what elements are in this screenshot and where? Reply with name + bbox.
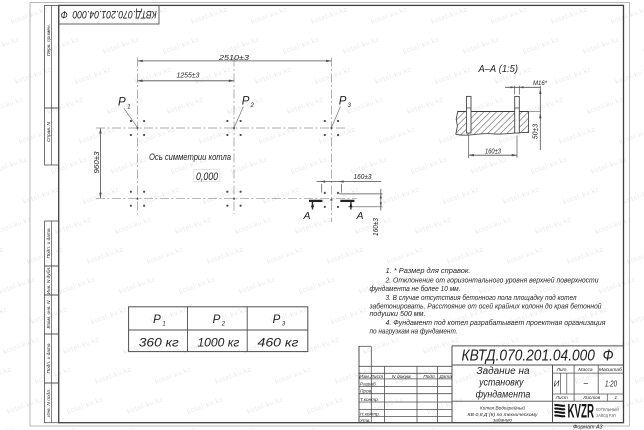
svg-text:Подп. и дата: Подп. и дата	[46, 343, 52, 373]
svg-text:kotel-kv.kz: kotel-kv.kz	[202, 186, 240, 206]
svg-text:kotel-kv.kz: kotel-kv.kz	[346, 96, 384, 116]
svg-text:Утв.: Утв.	[360, 418, 371, 423]
svg-text:kotel-kv.kz: kotel-kv.kz	[98, 426, 136, 430]
svg-text:фундамента: фундамента	[476, 389, 531, 401]
svg-text:kotel-kv.kz: kotel-kv.kz	[330, 306, 368, 326]
svg-text:kotel-kv.kz: kotel-kv.kz	[466, 96, 504, 116]
svg-text:kotel-kv.kz: kotel-kv.kz	[402, 36, 440, 56]
svg-text:kotel-kv.kz: kotel-kv.kz	[166, 96, 204, 116]
svg-text:2: 2	[221, 322, 226, 328]
svg-text:kotel-kv.kz: kotel-kv.kz	[110, 156, 148, 176]
svg-text:КВ-0,8 Д (К) по техническому: КВ-0,8 Д (К) по техническому	[468, 412, 539, 418]
svg-text:ЗАВОД РЭП: ЗАВОД РЭП	[596, 413, 616, 418]
svg-text:kotel-kv.kz: kotel-kv.kz	[318, 126, 356, 146]
svg-text:kotel-kv.kz: kotel-kv.kz	[382, 186, 420, 206]
svg-text:kotel-kv.kz: kotel-kv.kz	[618, 126, 644, 146]
svg-text:kotel-kv.kz: kotel-kv.kz	[234, 216, 272, 236]
svg-text:2510±3: 2510±3	[218, 53, 250, 62]
svg-text:kotel-kv.kz: kotel-kv.kz	[0, 96, 25, 116]
svg-text:160±3: 160±3	[485, 148, 501, 155]
svg-text:kotel-kv.kz: kotel-kv.kz	[206, 246, 244, 266]
svg-text:kotel-kv.kz: kotel-kv.kz	[282, 36, 320, 56]
svg-text:kotel-kv.kz: kotel-kv.kz	[398, 426, 436, 430]
svg-text:kotel-kv.kz: kotel-kv.kz	[518, 426, 556, 430]
svg-text:Ось симметрии котла: Ось симметрии котла	[149, 152, 231, 163]
svg-text:Масштаб: Масштаб	[599, 367, 622, 373]
svg-text:kotel-kv.kz: kotel-kv.kz	[74, 66, 112, 86]
svg-text:Взам. инв. N: Взам. инв. N	[46, 300, 52, 328]
svg-text:960±3: 960±3	[92, 151, 101, 174]
svg-text:А: А	[355, 210, 363, 222]
svg-text:kotel-kv.kz: kotel-kv.kz	[326, 246, 364, 266]
svg-text:kotel-kv.kz: kotel-kv.kz	[554, 66, 592, 86]
svg-text:kotel-kv.kz: kotel-kv.kz	[50, 156, 88, 176]
svg-text:kotel-kv.kz: kotel-kv.kz	[534, 216, 572, 236]
svg-text:kotel-kv.kz: kotel-kv.kz	[0, 306, 9, 326]
svg-text:kotel-kv.kz: kotel-kv.kz	[594, 216, 632, 236]
svg-text:kotel-kv.kz: kotel-kv.kz	[230, 156, 268, 176]
svg-text:kotel-kv.kz: kotel-kv.kz	[146, 246, 184, 266]
svg-text:kotel-kv.kz: kotel-kv.kz	[190, 6, 228, 26]
svg-text:kotel-kv.kz: kotel-kv.kz	[102, 36, 140, 56]
svg-text:kotel-kv.kz: kotel-kv.kz	[178, 276, 216, 296]
svg-text:kotel-kv.kz: kotel-kv.kz	[78, 126, 116, 146]
svg-text:1: 1	[614, 395, 617, 400]
svg-text:kotel-kv.kz: kotel-kv.kz	[502, 186, 540, 206]
svg-text:kotel-kv.kz: kotel-kv.kz	[162, 36, 200, 56]
svg-text:Т.контр.: Т.контр.	[360, 397, 379, 402]
svg-text:kotel-kv.kz: kotel-kv.kz	[294, 216, 332, 236]
svg-text:kotel-kv.kz: kotel-kv.kz	[54, 216, 92, 236]
svg-text:–: –	[583, 378, 589, 387]
svg-text:Изм.Лист: Изм.Лист	[359, 374, 383, 379]
svg-text:Масса: Масса	[578, 367, 593, 373]
svg-text:Задание на: Задание на	[477, 366, 530, 377]
svg-text:Дата: Дата	[438, 374, 452, 379]
svg-text:Котел Водогрейный: Котел Водогрейный	[480, 404, 525, 411]
svg-text:50±3: 50±3	[533, 124, 540, 139]
svg-text:P: P	[339, 96, 347, 108]
svg-text:kotel-kv.kz: kotel-kv.kz	[430, 6, 468, 26]
svg-text:kotel-kv.kz: kotel-kv.kz	[126, 396, 164, 416]
svg-text:Формат А3: Формат А3	[573, 424, 603, 430]
svg-text:КВТД.070.201.04.000 Ф: КВТД.070.201.04.000 Ф	[462, 347, 614, 364]
svg-text:Справ. N: Справ. N	[46, 121, 52, 142]
svg-text:1: 1	[127, 105, 130, 111]
svg-text:kotel-kv.kz: kotel-kv.kz	[82, 186, 120, 206]
svg-text:kotel-kv.kz: kotel-kv.kz	[246, 396, 284, 416]
svg-text:kotel-kv.kz: kotel-kv.kz	[634, 366, 644, 386]
svg-text:kotel-kv.kz: kotel-kv.kz	[378, 126, 416, 146]
svg-text:kotel-kv.kz: kotel-kv.kz	[338, 426, 376, 430]
svg-text:Разраб.: Разраб.	[360, 381, 377, 386]
svg-text:N докум.: N докум.	[392, 374, 412, 379]
svg-text:kotel-kv.kz: kotel-kv.kz	[114, 216, 152, 236]
svg-text:kotel-kv.kz: kotel-kv.kz	[10, 6, 48, 26]
svg-text:kotel-kv.kz: kotel-kv.kz	[614, 66, 644, 86]
svg-text:P: P	[273, 314, 281, 326]
svg-text:kotel-kv.kz: kotel-kv.kz	[218, 426, 256, 430]
svg-text:P: P	[153, 314, 161, 326]
svg-text:kotel-kv.kz: kotel-kv.kz	[186, 396, 224, 416]
svg-text:kotel-kv.kz: kotel-kv.kz	[62, 336, 100, 356]
svg-text:kotel-kv.kz: kotel-kv.kz	[610, 6, 644, 26]
svg-text:460 кг: 460 кг	[258, 337, 299, 349]
svg-text:kotel-kv.kz: kotel-kv.kz	[630, 306, 644, 326]
svg-text:kotel-kv.kz: kotel-kv.kz	[306, 396, 344, 416]
svg-text:kotel-kv.kz: kotel-kv.kz	[386, 246, 424, 266]
svg-text:kotel-kv.kz: kotel-kv.kz	[46, 96, 84, 116]
svg-text:kotel-kv.kz: kotel-kv.kz	[342, 36, 380, 56]
svg-text:kotel-kv.kz: kotel-kv.kz	[0, 276, 37, 296]
svg-text:kotel-kv.kz: kotel-kv.kz	[290, 156, 328, 176]
svg-text:kotel-kv.kz: kotel-kv.kz	[426, 396, 464, 416]
svg-text:kotel-kv.kz: kotel-kv.kz	[0, 156, 29, 176]
svg-text:Перв. примен.: Перв. примен.	[46, 24, 52, 56]
svg-text:1: 1	[162, 322, 165, 328]
svg-text:kotel-kv.kz: kotel-kv.kz	[442, 186, 480, 206]
svg-text:kotel-kv.kz: kotel-kv.kz	[58, 276, 96, 296]
svg-text:kotel-kv.kz: kotel-kv.kz	[0, 216, 33, 236]
svg-text:kotel-kv.kz: kotel-kv.kz	[474, 216, 512, 236]
svg-text:kotel-kv.kz: kotel-kv.kz	[462, 36, 500, 56]
svg-text:Инв. N дубл.: Инв. N дубл.	[46, 267, 52, 295]
svg-text:Подп. и дата: Подп. и дата	[46, 228, 52, 258]
svg-text:KVZR: KVZR	[568, 401, 595, 423]
svg-text:И: И	[554, 380, 560, 389]
svg-text:заданию: заданию	[492, 418, 512, 424]
svg-text:Листов: Листов	[582, 395, 601, 400]
svg-text:kotel-kv.kz: kotel-kv.kz	[198, 126, 236, 146]
svg-text:А: А	[302, 210, 310, 222]
svg-text:kotel-kv.kz: kotel-kv.kz	[2, 336, 40, 356]
svg-text:3: 3	[282, 322, 286, 328]
svg-text:kotel-kv.kz: kotel-kv.kz	[374, 66, 412, 86]
svg-text:P: P	[242, 96, 250, 108]
svg-text:Н.контр.: Н.контр.	[360, 412, 380, 417]
svg-text:kotel-kv.kz: kotel-kv.kz	[598, 276, 636, 296]
svg-text:kotel-kv.kz: kotel-kv.kz	[66, 396, 104, 416]
svg-text:kotel-kv.kz: kotel-kv.kz	[274, 366, 312, 386]
svg-text:P: P	[118, 97, 126, 109]
svg-text:kotel-kv.kz: kotel-kv.kz	[526, 96, 564, 116]
svg-text:kotel-kv.kz: kotel-kv.kz	[266, 246, 304, 266]
svg-text:kotel-kv.kz: kotel-kv.kz	[254, 66, 292, 86]
svg-text:kotel-kv.kz: kotel-kv.kz	[434, 66, 472, 86]
svg-text:kotel-kv.kz: kotel-kv.kz	[238, 276, 276, 296]
svg-text:Подп.: Подп.	[423, 374, 435, 379]
svg-text:160±3: 160±3	[354, 174, 372, 181]
svg-text:kotel-kv.kz: kotel-kv.kz	[158, 426, 196, 430]
svg-text:kotel-kv.kz: kotel-kv.kz	[410, 156, 448, 176]
svg-text:по нагрузкам на фундамент.: по нагрузкам на фундамент.	[370, 327, 458, 336]
svg-text:kotel-kv.kz: kotel-kv.kz	[414, 216, 452, 236]
svg-text:360 кг: 360 кг	[139, 337, 179, 349]
svg-text:КВТД.070.201.04.000 Ф: КВТД.070.201.04.000 Ф	[60, 8, 156, 20]
svg-text:kotel-kv.kz: kotel-kv.kz	[506, 246, 544, 266]
svg-text:kotel-kv.kz: kotel-kv.kz	[0, 246, 5, 266]
svg-text:160±3: 160±3	[373, 218, 380, 236]
svg-text:установку: установку	[478, 377, 524, 388]
svg-text:kotel-kv.kz: kotel-kv.kz	[470, 156, 508, 176]
svg-text:kotel-kv.kz: kotel-kv.kz	[0, 426, 17, 430]
svg-text:kotel-kv.kz: kotel-kv.kz	[38, 426, 76, 430]
svg-text:kotel-kv.kz: kotel-kv.kz	[446, 246, 484, 266]
svg-text:подушки 500 мм.: подушки 500 мм.	[370, 309, 426, 318]
svg-text:Пров.: Пров.	[360, 389, 372, 394]
svg-text:kotel-kv.kz: kotel-kv.kz	[314, 66, 352, 86]
svg-text:kotel-kv.kz: kotel-kv.kz	[134, 66, 172, 86]
svg-text:kotel-kv.kz: kotel-kv.kz	[86, 246, 124, 266]
svg-text:kotel-kv.kz: kotel-kv.kz	[582, 36, 620, 56]
svg-text:1255±3: 1255±3	[177, 71, 201, 80]
svg-text:1000 кг: 1000 кг	[197, 337, 239, 349]
svg-text:kotel-kv.kz: kotel-kv.kz	[310, 6, 348, 26]
svg-text:kotel-kv.kz: kotel-kv.kz	[530, 156, 568, 176]
svg-text:kotel-kv.kz: kotel-kv.kz	[154, 366, 192, 386]
svg-text:kotel-kv.kz: kotel-kv.kz	[214, 366, 252, 386]
svg-text:kotel-kv.kz: kotel-kv.kz	[370, 6, 408, 26]
svg-text:P: P	[213, 314, 221, 326]
svg-text:kotel-kv.kz: kotel-kv.kz	[566, 246, 604, 266]
svg-text:Лит.: Лит.	[556, 367, 568, 373]
svg-text:Лист: Лист	[555, 395, 568, 400]
svg-text:1. * Размер для справок.: 1. * Размер для справок.	[386, 266, 471, 275]
svg-text:kotel-kv.kz: kotel-kv.kz	[626, 246, 644, 266]
svg-text:kotel-kv.kz: kotel-kv.kz	[458, 426, 496, 430]
svg-text:kotel-kv.kz: kotel-kv.kz	[22, 186, 60, 206]
svg-text:kotel-kv.kz: kotel-kv.kz	[622, 186, 644, 206]
svg-text:kotel-kv.kz: kotel-kv.kz	[638, 426, 644, 430]
svg-text:kotel-kv.kz: kotel-kv.kz	[250, 6, 288, 26]
svg-text:А–А (1:5): А–А (1:5)	[478, 63, 518, 75]
svg-text:2: 2	[250, 103, 255, 109]
svg-text:1:20: 1:20	[605, 380, 618, 389]
svg-text:kotel-kv.kz: kotel-kv.kz	[558, 126, 596, 146]
svg-text:kotel-kv.kz: kotel-kv.kz	[258, 126, 296, 146]
svg-text:kotel-kv.kz: kotel-kv.kz	[522, 36, 560, 56]
svg-text:kotel-kv.kz: kotel-kv.kz	[550, 6, 588, 26]
svg-text:kotel-kv.kz: kotel-kv.kz	[142, 186, 180, 206]
svg-text:фундамента не более 10 мм.: фундамента не более 10 мм.	[370, 284, 461, 293]
svg-text:kotel-kv.kz: kotel-kv.kz	[278, 426, 316, 430]
svg-text:kotel-kv.kz: kotel-kv.kz	[118, 276, 156, 296]
svg-text:kotel-kv.kz: kotel-kv.kz	[0, 366, 13, 386]
svg-text:kotel-kv.kz: kotel-kv.kz	[14, 66, 52, 86]
svg-text:kotel-kv.kz: kotel-kv.kz	[90, 306, 128, 326]
svg-text:kotel-kv.kz: kotel-kv.kz	[6, 396, 44, 416]
svg-text:kotel-kv.kz: kotel-kv.kz	[586, 96, 624, 116]
svg-text:kotel-kv.kz: kotel-kv.kz	[286, 96, 324, 116]
svg-text:kotel-kv.kz: kotel-kv.kz	[0, 186, 1, 206]
svg-text:kotel-kv.kz: kotel-kv.kz	[562, 186, 600, 206]
svg-text:kotel-kv.kz: kotel-kv.kz	[298, 276, 336, 296]
svg-text:Инв. N подл.: Инв. N подл.	[46, 389, 52, 417]
svg-text:0,000: 0,000	[196, 171, 219, 183]
svg-text:kotel-kv.kz: kotel-kv.kz	[174, 216, 212, 236]
svg-text:kotel-kv.kz: kotel-kv.kz	[94, 366, 132, 386]
svg-text:kotel-kv.kz: kotel-kv.kz	[590, 156, 628, 176]
svg-text:kotel-kv.kz: kotel-kv.kz	[406, 96, 444, 116]
svg-text:kotel-kv.kz: kotel-kv.kz	[0, 36, 21, 56]
svg-text:kotel-kv.kz: kotel-kv.kz	[194, 66, 232, 86]
svg-text:КОТЕЛЬНЫЙ: КОТЕЛЬНЫЙ	[596, 407, 619, 412]
svg-text:kotel-kv.kz: kotel-kv.kz	[490, 6, 528, 26]
svg-text:kotel-kv.kz: kotel-kv.kz	[262, 186, 300, 206]
